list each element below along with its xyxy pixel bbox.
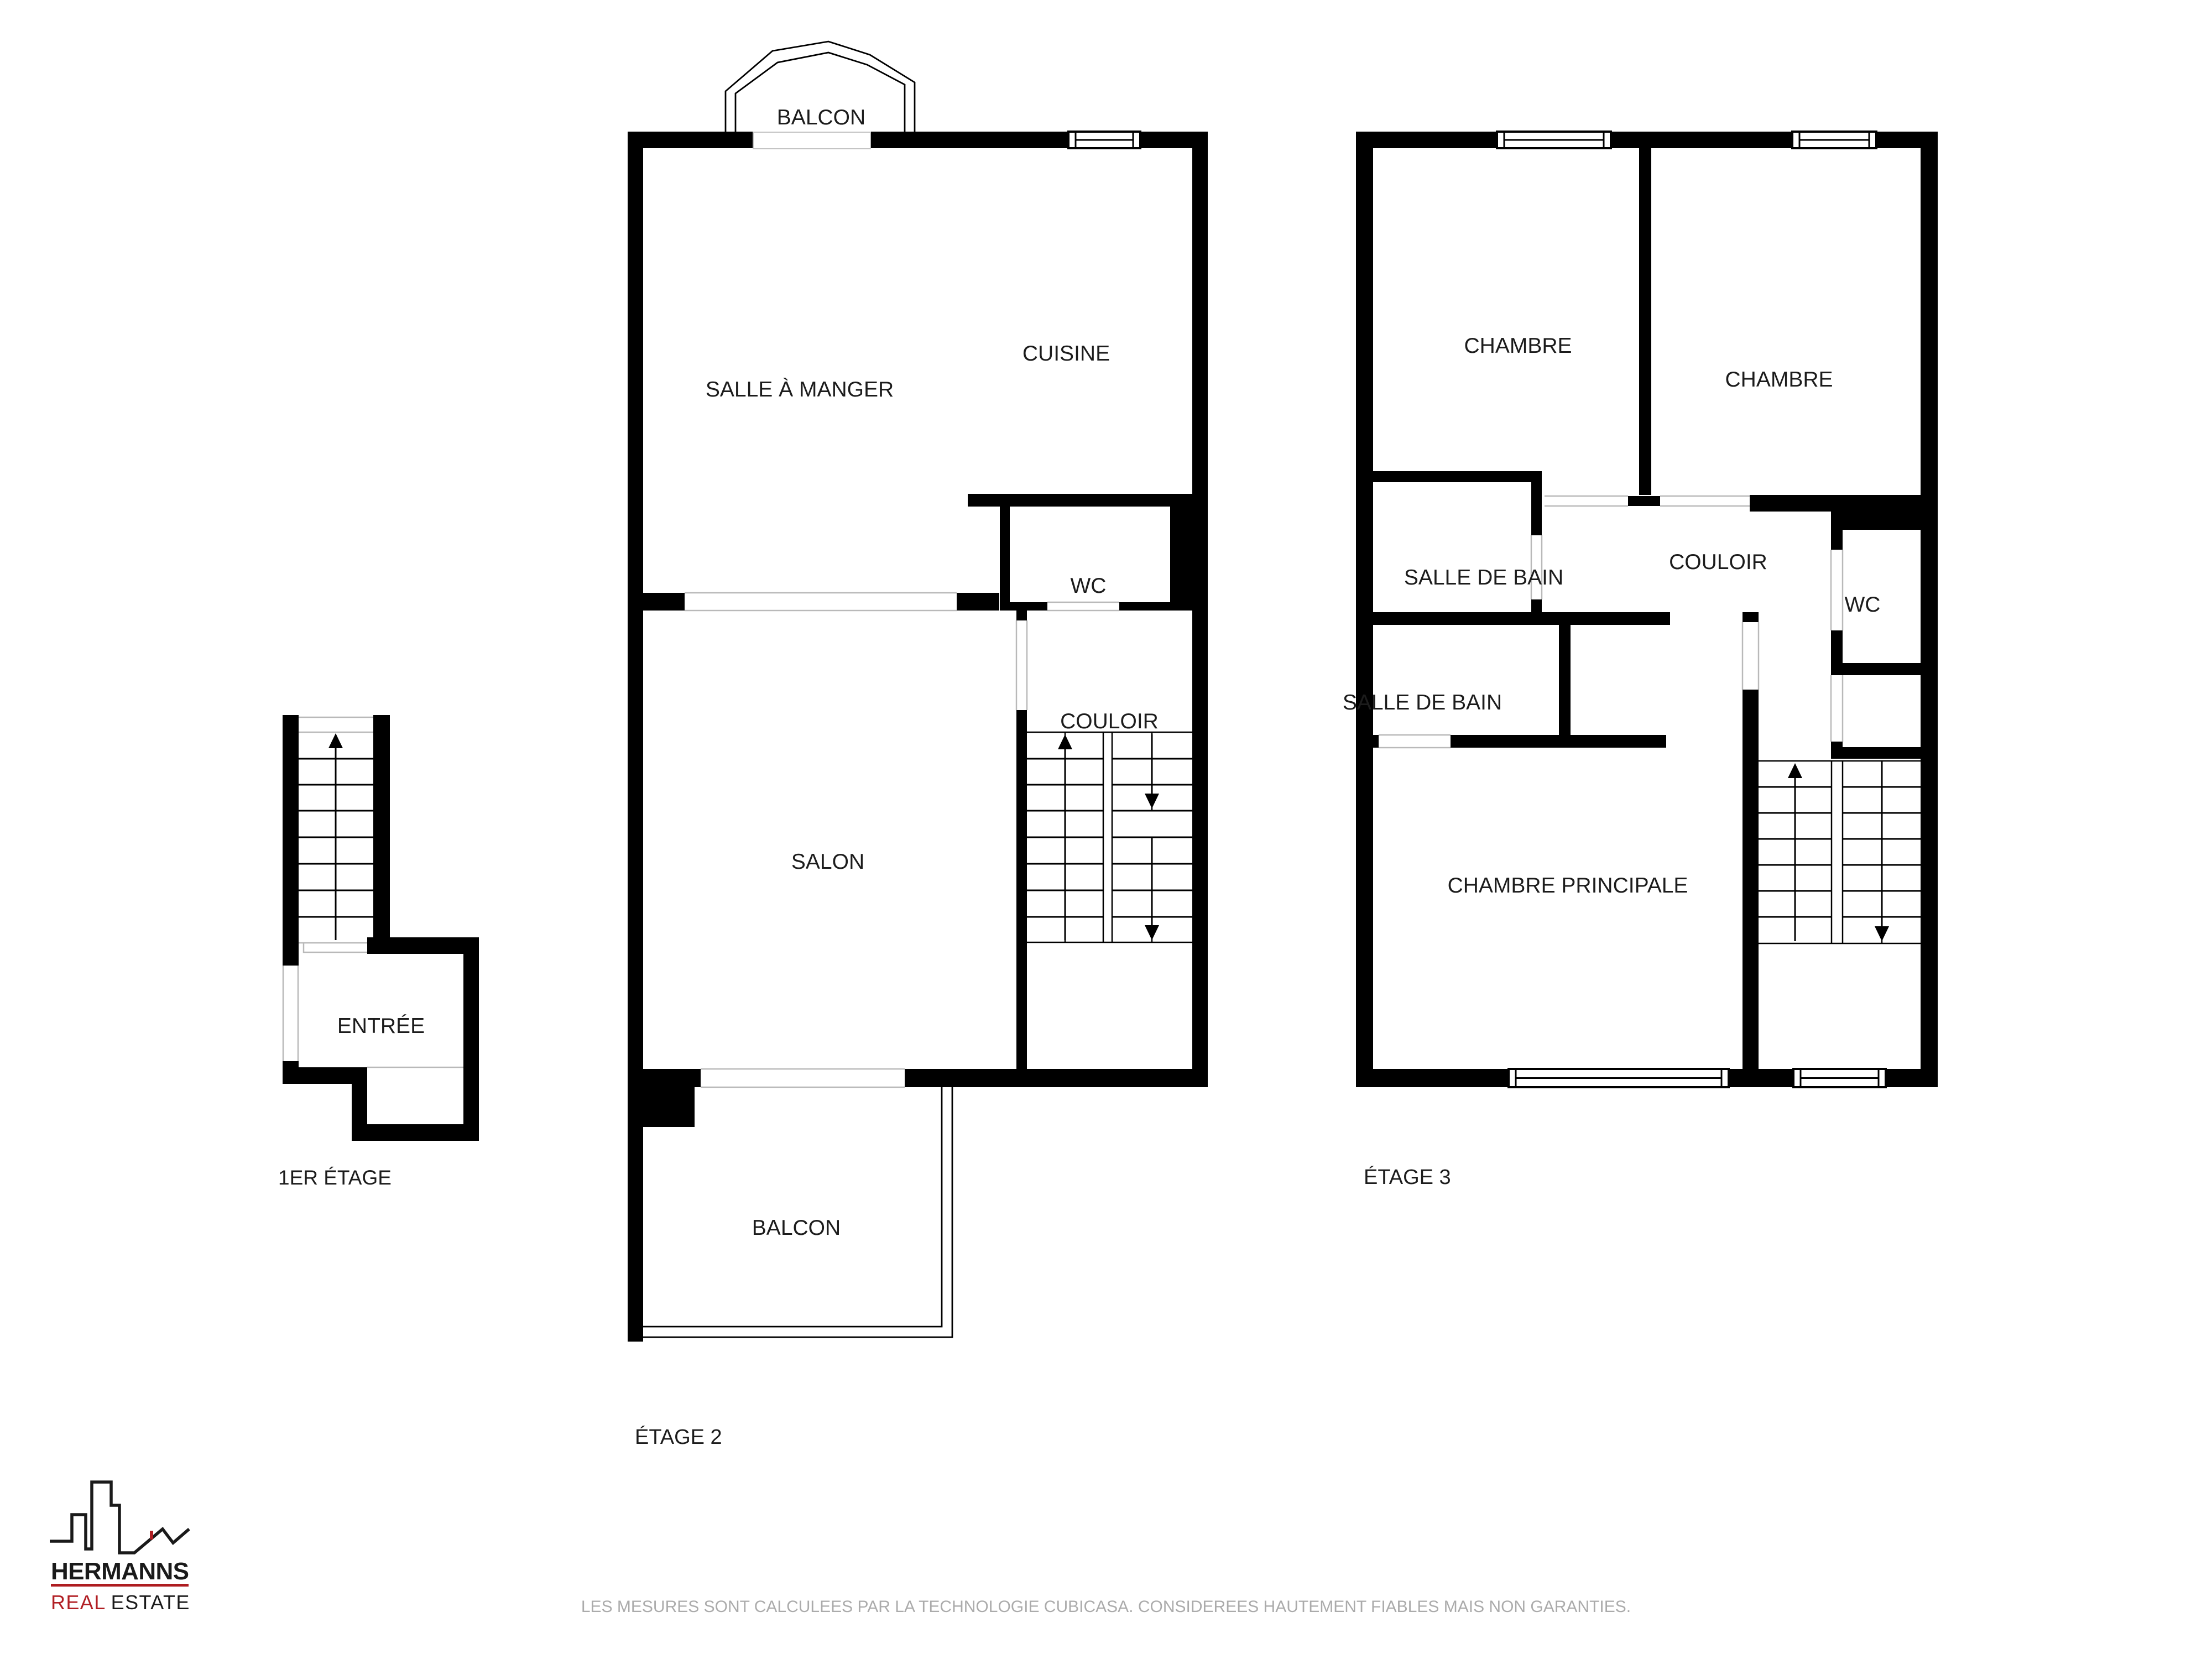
svg-text:LES MESURES SONT CALCULEES PAR: LES MESURES SONT CALCULEES PAR LA TECHNO… (581, 1598, 1631, 1616)
svg-text:ENTRÉE: ENTRÉE (337, 1014, 425, 1038)
svg-text:BALCON: BALCON (752, 1216, 841, 1240)
svg-text:SALON: SALON (791, 850, 864, 874)
svg-text:BALCON: BALCON (777, 106, 865, 129)
svg-text:COULOIR: COULOIR (1669, 550, 1767, 574)
svg-text:HERMANNS: HERMANNS (51, 1558, 189, 1585)
svg-text:CHAMBRE: CHAMBRE (1464, 334, 1572, 358)
svg-text:WC: WC (1845, 593, 1881, 617)
svg-text:1ER ÉTAGE: 1ER ÉTAGE (278, 1166, 392, 1189)
svg-text:CHAMBRE: CHAMBRE (1725, 368, 1833, 392)
svg-text:COULOIR: COULOIR (1060, 709, 1159, 733)
svg-text:CHAMBRE PRINCIPALE: CHAMBRE PRINCIPALE (1448, 874, 1688, 898)
svg-text:ÉTAGE 3: ÉTAGE 3 (1364, 1165, 1451, 1189)
svg-text:WC: WC (1071, 574, 1107, 598)
svg-text:SALLE DE BAIN: SALLE DE BAIN (1404, 566, 1563, 589)
svg-text:CUISINE: CUISINE (1022, 342, 1110, 366)
svg-text:ÉTAGE 2: ÉTAGE 2 (635, 1425, 722, 1449)
svg-text:SALLE À MANGER: SALLE À MANGER (706, 378, 894, 401)
svg-text:SALLE DE BAIN: SALLE DE BAIN (1343, 691, 1502, 714)
svg-text:REALESTATE: REALESTATE (51, 1591, 190, 1614)
